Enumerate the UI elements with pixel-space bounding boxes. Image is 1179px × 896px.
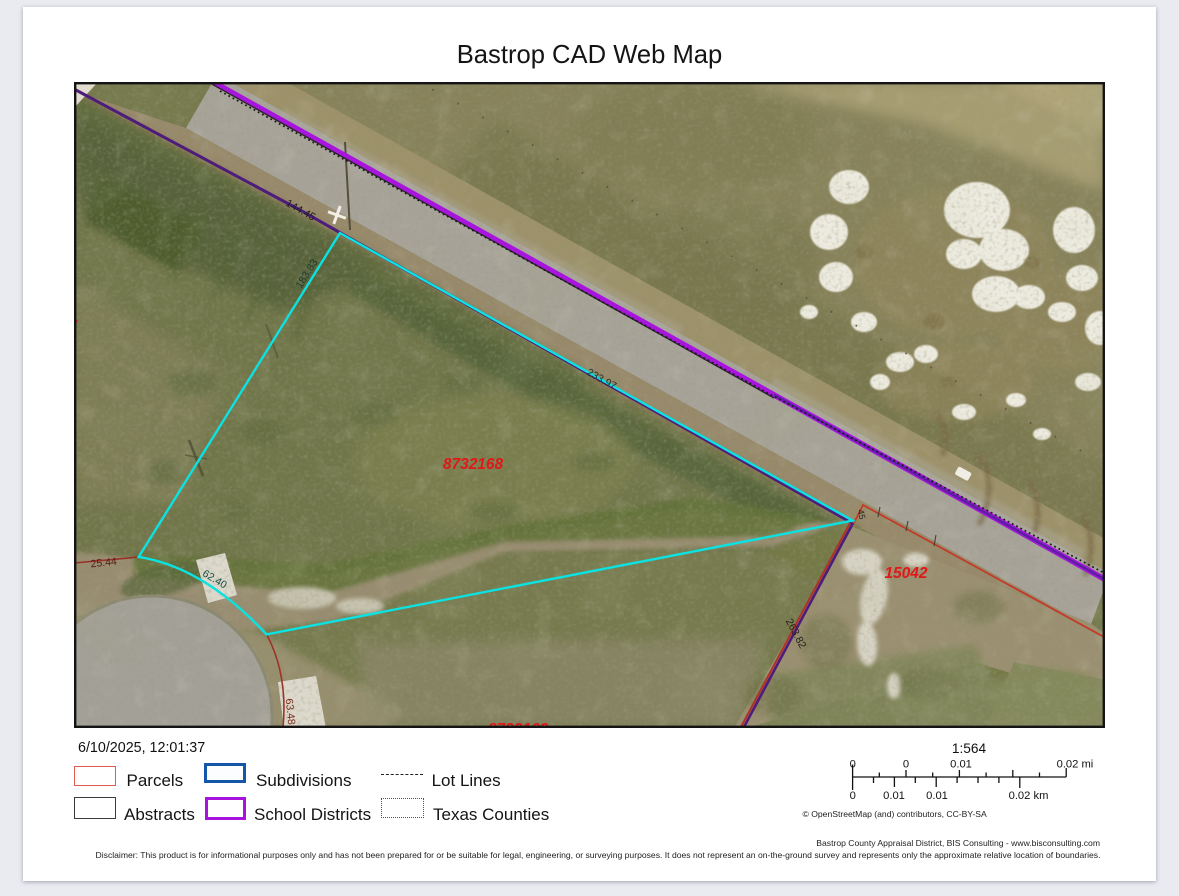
svg-text:45: 45 [856, 508, 868, 520]
svg-text:15042: 15042 [884, 565, 927, 582]
svg-text:0.01: 0.01 [883, 790, 905, 802]
svg-text:0: 0 [850, 790, 856, 802]
svg-text:0.01: 0.01 [926, 790, 948, 802]
svg-text:0: 0 [903, 759, 909, 771]
svg-text:0.01: 0.01 [950, 759, 972, 771]
svg-text:0.02 km: 0.02 km [1009, 790, 1049, 802]
svg-text:1:564: 1:564 [952, 741, 987, 756]
svg-text:8732168: 8732168 [443, 456, 504, 473]
svg-text:0.02 mi: 0.02 mi [1057, 759, 1094, 771]
